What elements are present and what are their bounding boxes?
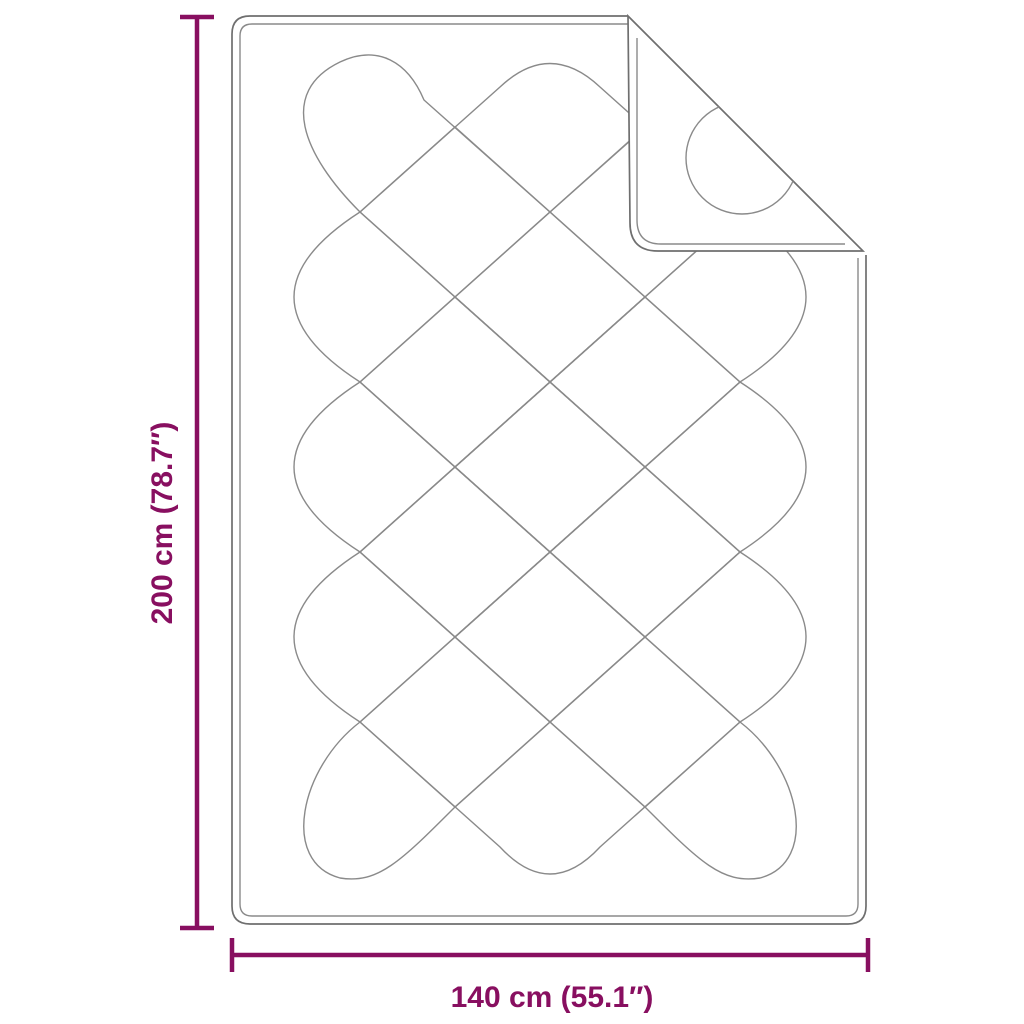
dimension-width-label: 140 cm (55.1″): [451, 981, 654, 1014]
quilt-stitch-line: [294, 212, 360, 382]
quilt-stitch-line: [550, 382, 740, 722]
quilt-stitch-line: [550, 212, 740, 552]
diagram-canvas: 200 cm (78.7″) 140 cm (55.1″): [0, 0, 1024, 1024]
product-dimension-diagram: 200 cm (78.7″) 140 cm (55.1″): [0, 0, 1024, 1024]
quilt-stitch-line: [360, 127, 645, 467]
quilt-stitch-line: [455, 297, 740, 637]
quilt-stitch-line: [304, 55, 550, 212]
quilt-stitch-line: [455, 467, 740, 807]
quilt-stitch-line: [740, 552, 806, 722]
dimension-height: 200 cm (78.7″): [146, 17, 214, 928]
quilt-stitch-line: [304, 552, 550, 879]
quilt-stitch-line: [740, 382, 806, 552]
quilt-stitch-line: [360, 467, 645, 807]
quilt-outline: [232, 16, 866, 924]
dimension-height-label: 200 cm (78.7″): [146, 422, 179, 625]
quilt-stitch-line: [360, 382, 550, 722]
quilt-stitch-line: [360, 297, 645, 637]
quilt-stitch-line: [360, 212, 550, 552]
quilt-stitch-line: [294, 552, 360, 722]
quilt-stitch-line: [294, 382, 360, 552]
quilt-stitch-line: [550, 552, 796, 879]
dimension-width: 140 cm (55.1″): [232, 938, 868, 1014]
quilt-stitch-line: [360, 552, 740, 874]
fold-flap: [628, 16, 863, 251]
